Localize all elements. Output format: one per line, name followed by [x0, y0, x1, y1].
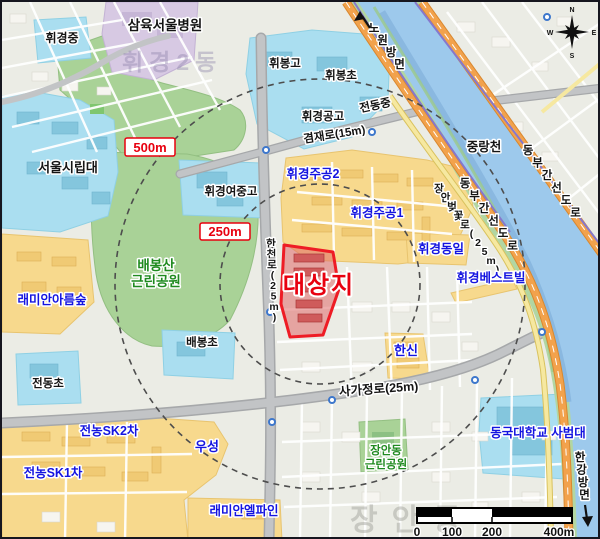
label-baebong-elem: 배봉초	[186, 335, 218, 349]
label-wooseong: 우성	[195, 439, 219, 454]
label-hwigyeong-jugong2: 휘경주공2	[287, 166, 340, 181]
label-hanshin: 한신	[394, 343, 418, 358]
label-jangandong-park-line1: 장안동	[370, 443, 402, 457]
radius-label-500m: 500m	[125, 138, 175, 156]
label-hwigyeong-dongil: 휘경동일	[418, 241, 464, 256]
svg-text:N: N	[569, 7, 574, 14]
label-seoul-city-univ: 서울시립대	[38, 160, 98, 175]
label-baebongsan-park-line1: 배봉산	[137, 257, 175, 273]
svg-text:S: S	[570, 53, 575, 60]
svg-text:W: W	[547, 30, 554, 37]
label-hwigyeong-girls: 휘경여중고	[205, 184, 258, 198]
target-site-label: 대상지	[283, 272, 355, 299]
map-canvas: 휘경2동 장안동 삼육서울병원 휘경중 서울시립대 휘봉고 휘봉초 전동중 휘경…	[2, 2, 600, 539]
label-hwigyeong-jugong1: 휘경주공1	[351, 205, 404, 220]
svg-text:E: E	[592, 30, 597, 37]
label-raemian-areumsup: 래미안아름숲	[17, 292, 87, 307]
label-hwigyeong-tech-high: 휘경공고	[302, 109, 345, 123]
svg-text:200: 200	[482, 525, 502, 539]
map-figure: 휘경2동 장안동 삼육서울병원 휘경중 서울시립대 휘봉고 휘봉초 전동중 휘경…	[0, 0, 600, 539]
label-hwibong-elem: 휘봉초	[325, 68, 357, 82]
label-hwigyeong-bestvill: 휘경베스트빌	[456, 270, 525, 285]
label-jungnang-stream: 중랑천	[467, 139, 502, 154]
label-hwibong-high: 휘봉고	[269, 56, 301, 70]
radius-label-250m: 250m	[200, 223, 250, 240]
svg-text:100: 100	[442, 525, 462, 539]
label-raemian-elpine: 래미안엘파인	[209, 503, 278, 518]
label-hwigyeong-middle: 휘경중	[45, 30, 78, 45]
label-samyook-hospital: 삼육서울병원	[128, 17, 203, 33]
svg-text:500m: 500m	[133, 140, 166, 155]
district-watermark-top: 휘경2동	[122, 49, 222, 75]
label-baebongsan-park-line2: 근린공원	[131, 273, 181, 289]
svg-text:0: 0	[414, 525, 421, 539]
label-jeondong-elem: 전동초	[32, 376, 64, 390]
label-dongguk-univ: 동국대학교 사범대	[490, 425, 585, 440]
label-jangandong-park-line2: 근린공원	[365, 457, 407, 471]
svg-text:400m: 400m	[544, 525, 575, 539]
label-jeonnong-sk1: 전농SK1차	[24, 465, 83, 480]
svg-text:250m: 250m	[208, 224, 241, 239]
label-jeonnong-sk2: 전농SK2차	[80, 423, 139, 438]
